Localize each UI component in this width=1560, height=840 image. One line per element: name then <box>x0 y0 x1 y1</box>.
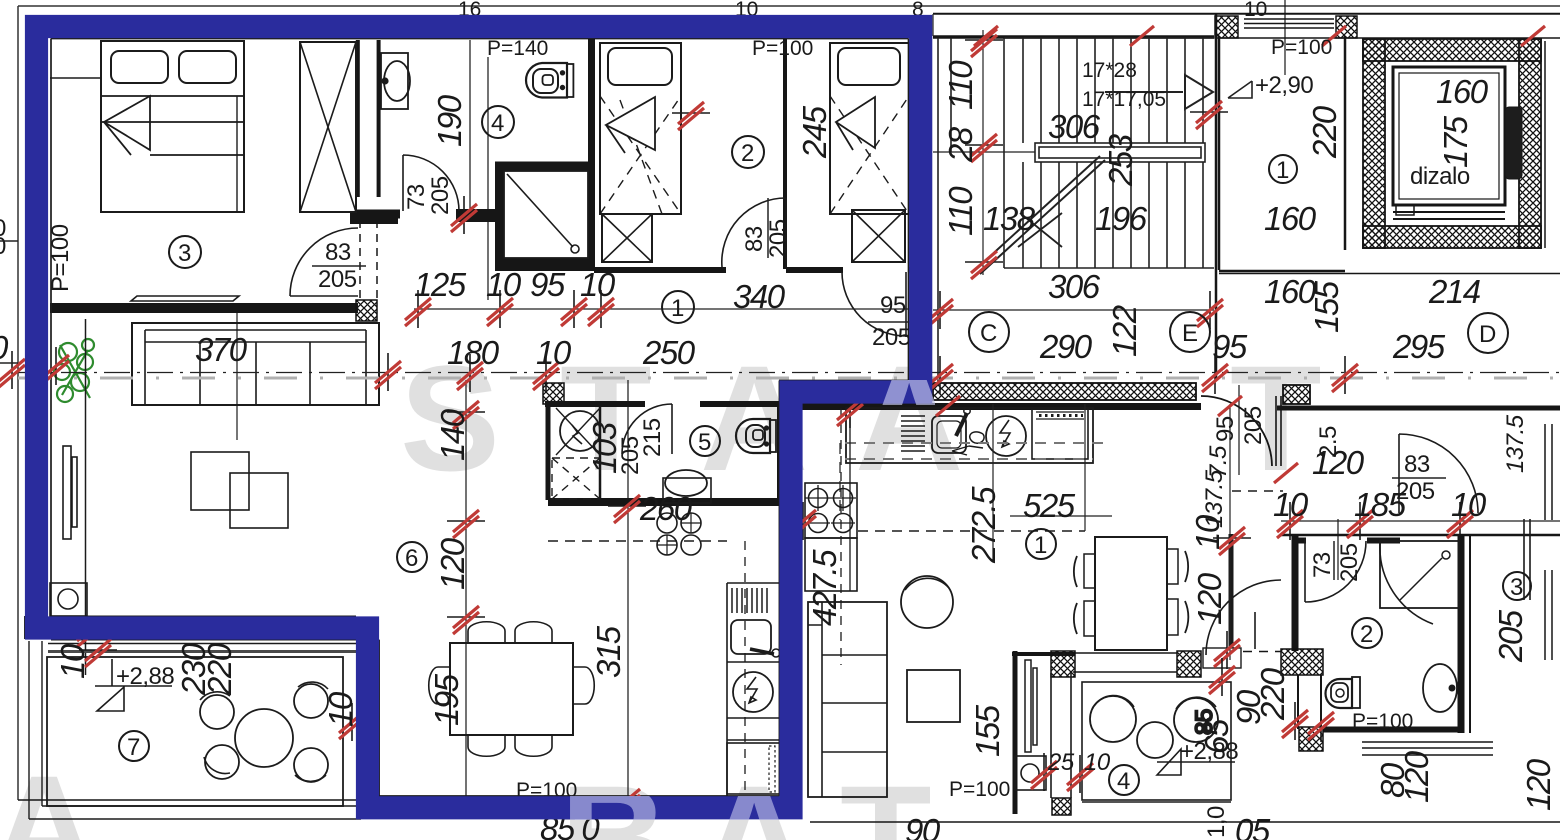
svg-text:205: 205 <box>1492 609 1529 663</box>
svg-text:220: 220 <box>1306 105 1343 159</box>
svg-text:P=100: P=100 <box>47 224 74 292</box>
svg-text:137.5: 137.5 <box>1502 414 1529 473</box>
svg-text:120: 120 <box>1191 572 1228 625</box>
svg-text:10: 10 <box>54 643 91 679</box>
svg-text:125: 125 <box>414 266 467 303</box>
svg-text:P=100: P=100 <box>1352 710 1413 733</box>
svg-text:4: 4 <box>1117 768 1130 795</box>
svg-text:195: 195 <box>428 673 465 726</box>
svg-text:95: 95 <box>880 292 906 319</box>
svg-text:160: 160 <box>1436 73 1489 110</box>
svg-text:306: 306 <box>1048 268 1101 305</box>
svg-text:10: 10 <box>322 691 359 727</box>
svg-text:P=100: P=100 <box>752 37 813 60</box>
svg-text:205: 205 <box>1240 406 1267 445</box>
svg-text:P=100: P=100 <box>949 778 1010 801</box>
svg-text:83: 83 <box>1404 451 1430 478</box>
svg-text:6: 6 <box>405 545 418 572</box>
svg-text:427.5: 427.5 <box>806 549 843 626</box>
svg-text:205: 205 <box>1336 543 1363 582</box>
svg-text:+2,90: +2,90 <box>1255 72 1313 99</box>
svg-text:110: 110 <box>942 60 979 110</box>
svg-text:10: 10 <box>536 334 572 371</box>
svg-text:138: 138 <box>983 200 1036 237</box>
svg-text:160: 160 <box>1264 200 1317 237</box>
svg-text:90: 90 <box>905 812 941 840</box>
svg-text:110: 110 <box>942 186 979 236</box>
svg-text:272.5: 272.5 <box>965 486 1002 564</box>
svg-text:83: 83 <box>325 239 351 266</box>
svg-text:4: 4 <box>491 110 504 137</box>
svg-text:95: 95 <box>1212 416 1239 442</box>
svg-text:P=100: P=100 <box>1271 36 1332 59</box>
svg-text:2: 2 <box>741 140 754 167</box>
svg-text:220: 220 <box>1254 667 1291 721</box>
svg-text:250: 250 <box>642 334 696 371</box>
svg-text:245: 245 <box>796 105 833 159</box>
svg-text:220: 220 <box>201 642 238 696</box>
svg-text:120: 120 <box>1520 758 1557 811</box>
svg-text:7: 7 <box>127 734 140 761</box>
svg-text:05: 05 <box>1235 812 1271 840</box>
svg-text:1: 1 <box>671 295 684 322</box>
svg-text:190: 190 <box>431 94 468 147</box>
svg-text:0: 0 <box>0 233 6 260</box>
svg-text:315: 315 <box>590 625 627 678</box>
svg-text:2: 2 <box>1360 621 1373 648</box>
svg-text:260: 260 <box>639 490 693 527</box>
svg-text:A: A <box>0 744 98 840</box>
svg-text:120: 120 <box>1398 750 1435 803</box>
svg-text:+2,88: +2,88 <box>116 663 174 690</box>
svg-text:137.5: 137.5 <box>1201 469 1228 528</box>
svg-text:3: 3 <box>1510 574 1523 601</box>
svg-text:340: 340 <box>733 278 786 315</box>
svg-text:525: 525 <box>1023 487 1076 524</box>
svg-text:185: 185 <box>1354 486 1407 523</box>
svg-text:205: 205 <box>765 219 792 258</box>
svg-text:10: 10 <box>580 266 616 303</box>
svg-text:E: E <box>1182 320 1198 347</box>
svg-text:120: 120 <box>434 537 471 590</box>
svg-text:D: D <box>1479 321 1496 348</box>
svg-text:65: 65 <box>1198 718 1235 754</box>
svg-text:1: 1 <box>1276 157 1289 184</box>
svg-text:215: 215 <box>639 418 666 457</box>
svg-text:C: C <box>980 320 997 347</box>
svg-text:1: 1 <box>1034 532 1047 559</box>
svg-text:17*28: 17*28 <box>1082 59 1137 82</box>
svg-text:175: 175 <box>1437 115 1474 168</box>
svg-text:180: 180 <box>447 334 500 371</box>
svg-text:2.5: 2.5 <box>1315 426 1342 458</box>
svg-text:5: 5 <box>698 429 711 456</box>
svg-text:196: 196 <box>1095 200 1148 237</box>
svg-text:10: 10 <box>486 266 522 303</box>
svg-text:3: 3 <box>178 240 191 267</box>
svg-text:P=140: P=140 <box>487 37 548 60</box>
svg-text:1,0: 1,0 <box>1203 806 1230 838</box>
svg-text:205: 205 <box>427 176 454 215</box>
svg-text:95: 95 <box>530 266 566 303</box>
svg-text:370: 370 <box>195 331 248 368</box>
svg-text:140: 140 <box>434 408 471 461</box>
svg-text:25: 25 <box>1047 749 1075 776</box>
svg-text:10: 10 <box>1451 486 1487 523</box>
svg-text:295: 295 <box>1392 328 1446 365</box>
svg-text:155: 155 <box>969 704 1006 757</box>
svg-text:155: 155 <box>1308 280 1345 333</box>
svg-text:83: 83 <box>741 226 768 252</box>
svg-text:10: 10 <box>1273 486 1309 523</box>
svg-text:10: 10 <box>1084 749 1111 776</box>
svg-text:205: 205 <box>872 324 911 351</box>
svg-text:95: 95 <box>1212 328 1248 365</box>
svg-text:306: 306 <box>1048 108 1101 145</box>
svg-text:205: 205 <box>318 266 357 293</box>
svg-text:10: 10 <box>1244 0 1267 21</box>
svg-text:28: 28 <box>942 126 979 163</box>
svg-text:122: 122 <box>1106 305 1143 357</box>
svg-text:73: 73 <box>1309 552 1336 578</box>
svg-text:290: 290 <box>1039 328 1093 365</box>
svg-text:dizalo: dizalo <box>1410 163 1470 190</box>
svg-text:73: 73 <box>403 184 430 210</box>
svg-text:214: 214 <box>1428 273 1481 310</box>
svg-text:253: 253 <box>1102 133 1139 187</box>
